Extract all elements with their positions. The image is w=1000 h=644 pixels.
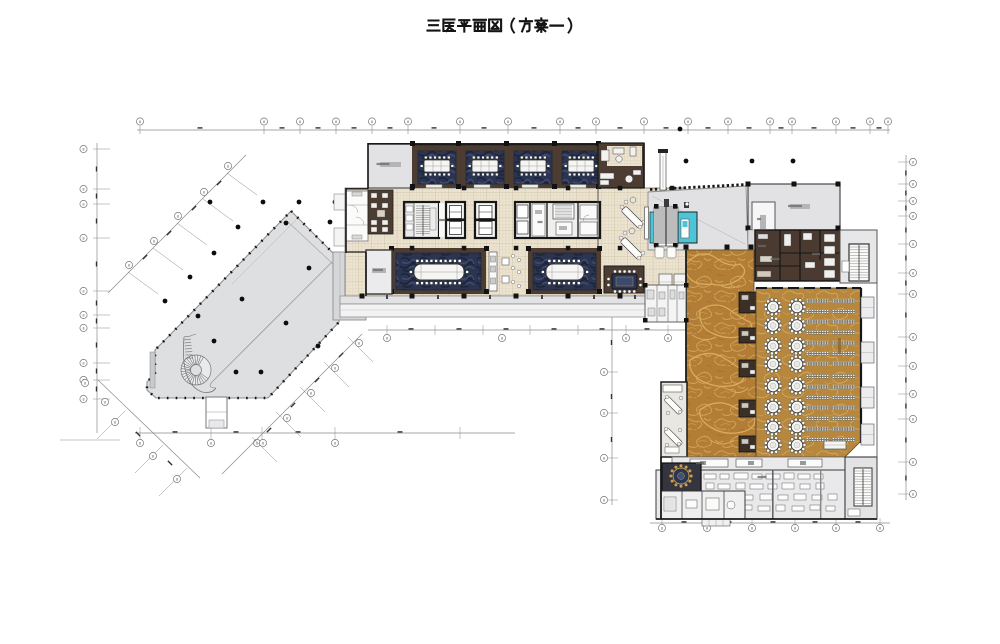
svg-text:8: 8 <box>83 361 85 365</box>
svg-text:8: 8 <box>912 199 914 203</box>
svg-text:8: 8 <box>912 492 914 496</box>
svg-text:8: 8 <box>887 120 889 124</box>
svg-text:8: 8 <box>501 336 503 340</box>
svg-text:8: 8 <box>407 120 409 124</box>
svg-text:8: 8 <box>104 400 106 404</box>
svg-text:8: 8 <box>152 454 154 458</box>
svg-text:8: 8 <box>114 420 116 424</box>
svg-text:8: 8 <box>835 120 837 124</box>
svg-text:8: 8 <box>83 236 85 240</box>
svg-text:8: 8 <box>139 441 141 445</box>
svg-text:8: 8 <box>83 397 85 401</box>
svg-text:8: 8 <box>310 391 312 395</box>
svg-text:8: 8 <box>912 242 914 246</box>
svg-text:8: 8 <box>83 289 85 293</box>
svg-text:8: 8 <box>912 214 914 218</box>
svg-text:8: 8 <box>335 120 337 124</box>
svg-text:8: 8 <box>83 313 85 317</box>
svg-text:8: 8 <box>706 526 708 530</box>
svg-text:8: 8 <box>835 526 837 530</box>
svg-text:8: 8 <box>869 120 871 124</box>
svg-text:8: 8 <box>84 381 86 385</box>
svg-text:8: 8 <box>83 147 85 151</box>
svg-text:8: 8 <box>667 336 669 340</box>
svg-text:8: 8 <box>83 326 85 330</box>
svg-text:8: 8 <box>603 456 605 460</box>
svg-text:8: 8 <box>358 341 360 345</box>
svg-text:8: 8 <box>603 411 605 415</box>
svg-text:8: 8 <box>203 190 205 194</box>
svg-text:8: 8 <box>912 417 914 421</box>
svg-text:8: 8 <box>625 336 627 340</box>
svg-text:8: 8 <box>661 526 663 530</box>
svg-text:8: 8 <box>210 441 212 445</box>
svg-text:8: 8 <box>262 441 264 445</box>
svg-text:8: 8 <box>334 366 336 370</box>
svg-text:8: 8 <box>83 187 85 191</box>
svg-text:8: 8 <box>912 364 914 368</box>
svg-text:8: 8 <box>263 120 265 124</box>
svg-text:8: 8 <box>83 202 85 206</box>
svg-text:8: 8 <box>912 460 914 464</box>
svg-text:8: 8 <box>912 271 914 275</box>
svg-text:8: 8 <box>128 263 130 267</box>
svg-text:8: 8 <box>879 526 881 530</box>
svg-text:8: 8 <box>643 120 645 124</box>
svg-text:8: 8 <box>791 120 793 124</box>
svg-text:8: 8 <box>559 120 561 124</box>
svg-text:8: 8 <box>912 182 914 186</box>
svg-text:8: 8 <box>751 526 753 530</box>
svg-text:8: 8 <box>912 292 914 296</box>
svg-text:8: 8 <box>334 441 336 445</box>
svg-text:8: 8 <box>603 370 605 374</box>
svg-text:8: 8 <box>595 120 597 124</box>
svg-text:8: 8 <box>912 160 914 164</box>
svg-text:8: 8 <box>153 239 155 243</box>
svg-text:8: 8 <box>507 120 509 124</box>
svg-text:8: 8 <box>459 120 461 124</box>
svg-text:8: 8 <box>177 214 179 218</box>
svg-text:8: 8 <box>687 120 689 124</box>
svg-text:8: 8 <box>912 335 914 339</box>
svg-text:8: 8 <box>727 120 729 124</box>
svg-text:8: 8 <box>794 526 796 530</box>
svg-text:8: 8 <box>227 164 229 168</box>
svg-text:8: 8 <box>176 477 178 481</box>
svg-text:8: 8 <box>286 416 288 420</box>
svg-text:8: 8 <box>299 120 301 124</box>
svg-text:8: 8 <box>139 120 141 124</box>
svg-text:8: 8 <box>603 498 605 502</box>
svg-text:8: 8 <box>912 392 914 396</box>
svg-text:8: 8 <box>769 120 771 124</box>
svg-text:8: 8 <box>371 120 373 124</box>
svg-text:8: 8 <box>386 336 388 340</box>
